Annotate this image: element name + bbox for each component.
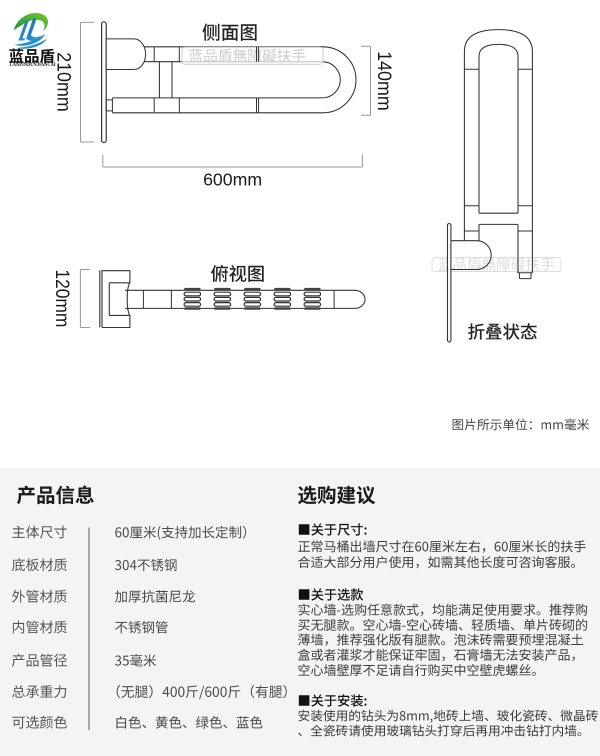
svg-text:600mm: 600mm	[203, 170, 262, 190]
svg-text:140mm: 140mm	[373, 51, 394, 110]
svg-text:120mm: 120mm	[51, 269, 72, 327]
svg-text:LANPINDUNJIANCAI: LANPINDUNJIANCAI	[10, 62, 56, 68]
